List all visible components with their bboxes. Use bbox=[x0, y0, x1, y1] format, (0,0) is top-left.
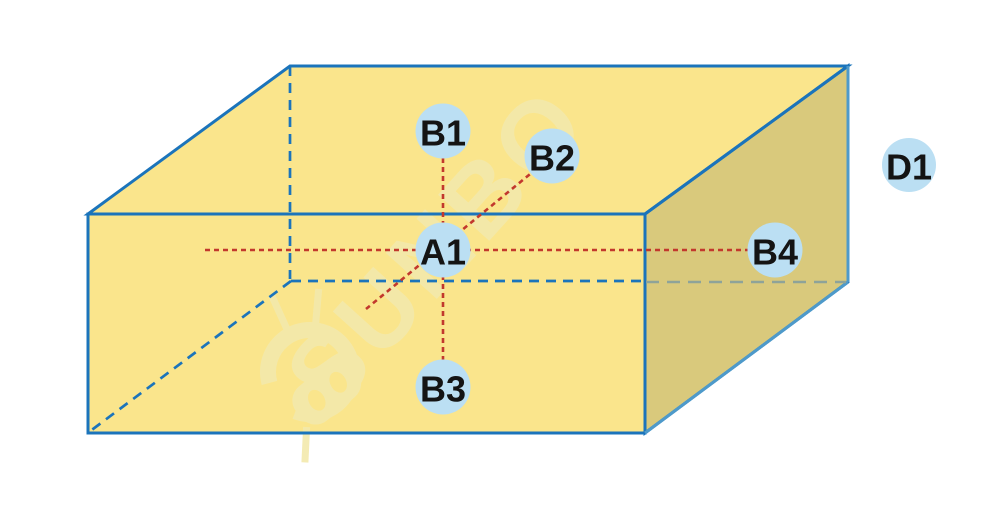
node-label-B4: B4 bbox=[752, 232, 798, 273]
node-label-B1: B1 bbox=[420, 113, 466, 154]
cuboid-diagram: SUNBO A1B1B2B3B4D1 bbox=[0, 0, 1000, 517]
node-label-B3: B3 bbox=[420, 369, 466, 410]
diagram-canvas: SUNBO A1B1B2B3B4D1 bbox=[0, 0, 1000, 517]
node-label-B2: B2 bbox=[529, 138, 575, 179]
node-label-D1: D1 bbox=[886, 147, 932, 188]
node-label-A1: A1 bbox=[420, 232, 466, 273]
